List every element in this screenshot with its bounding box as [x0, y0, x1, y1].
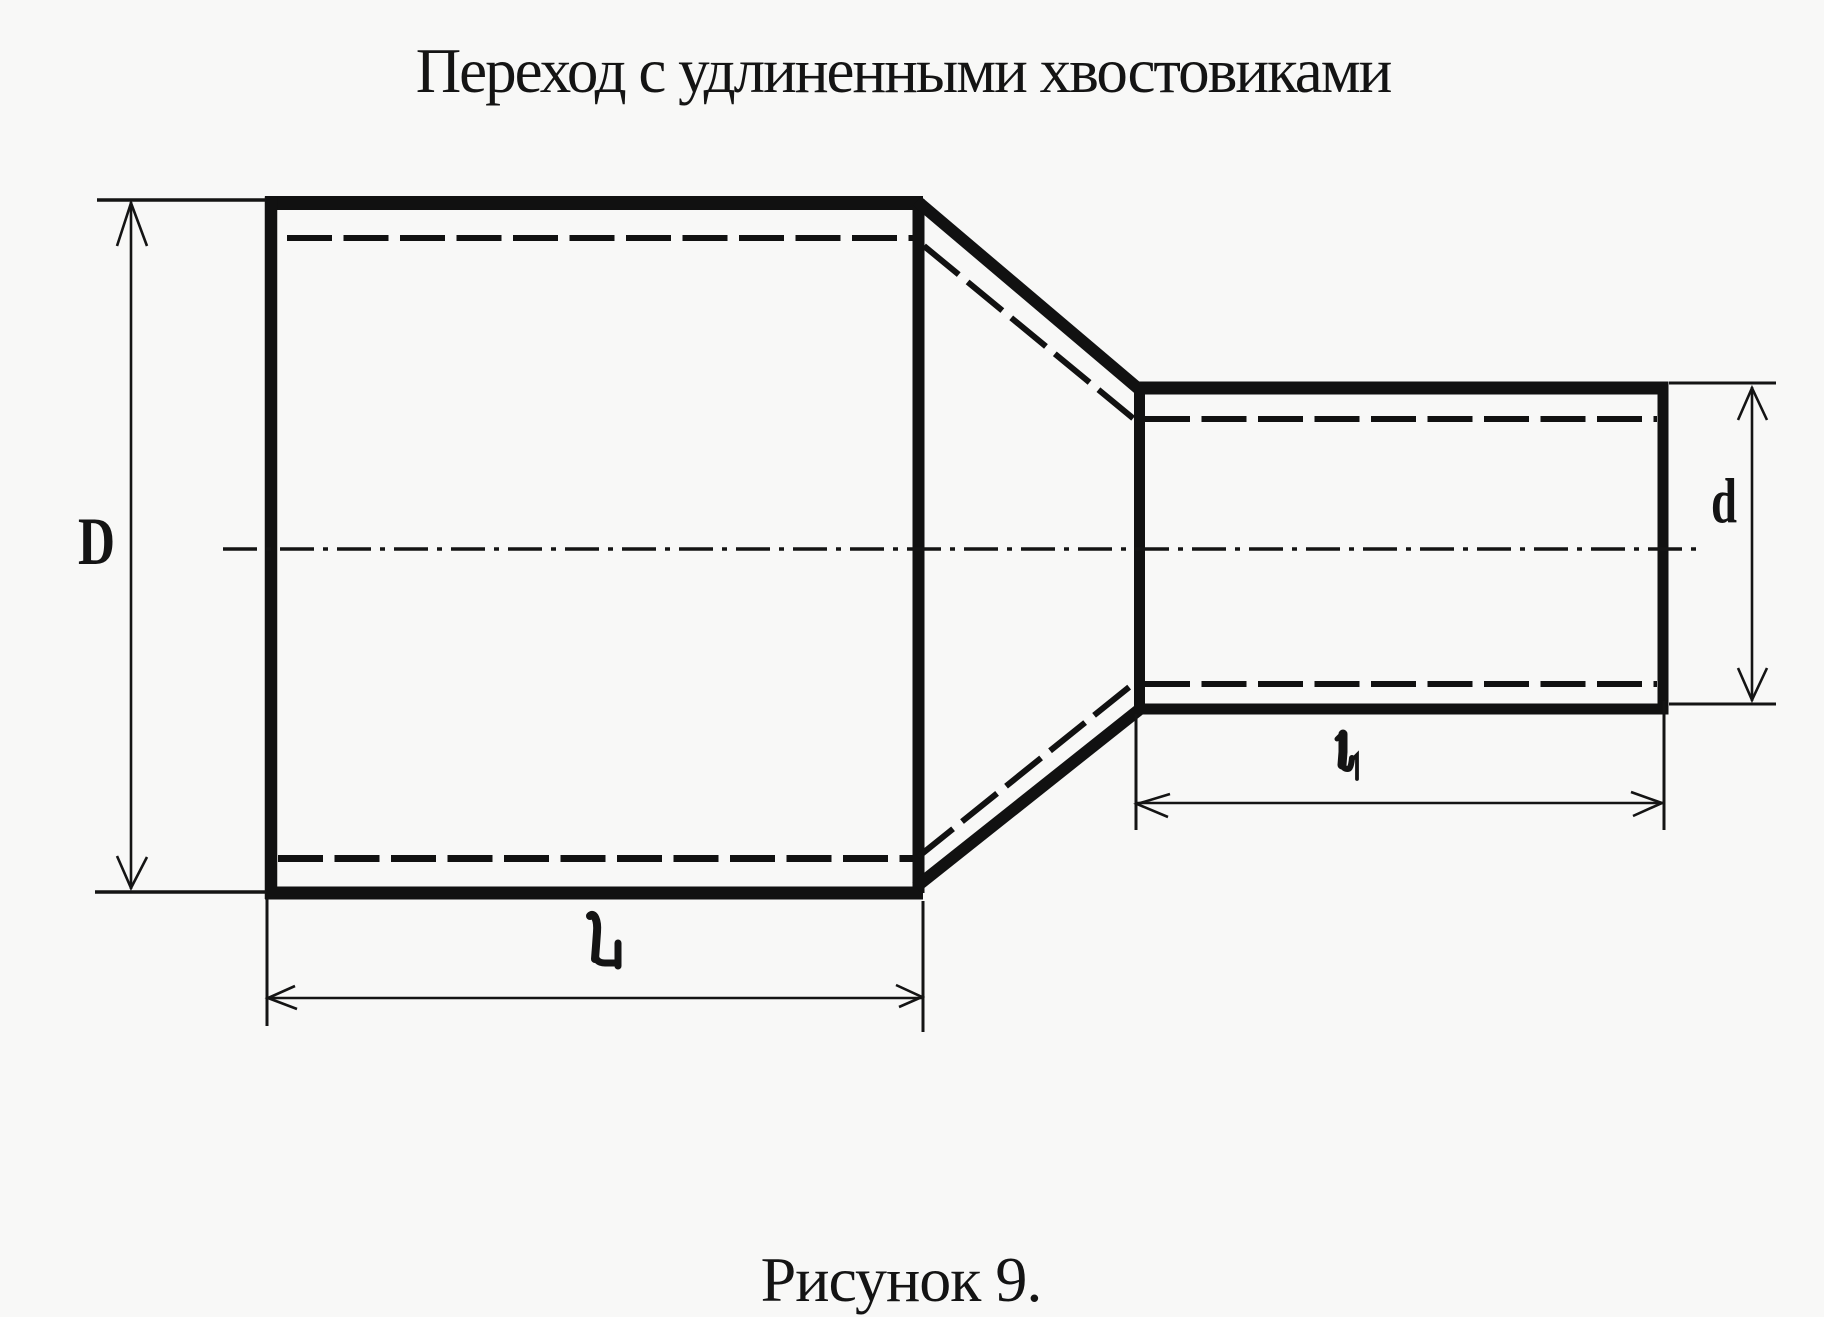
- svg-text:D: D: [78, 503, 115, 579]
- svg-text:Переход с удлиненными хвостови: Переход с удлиненными хвостовиками: [416, 36, 1392, 106]
- svg-text:Рисунок 9.: Рисунок 9.: [761, 1244, 1042, 1315]
- svg-text:d: d: [1711, 466, 1737, 536]
